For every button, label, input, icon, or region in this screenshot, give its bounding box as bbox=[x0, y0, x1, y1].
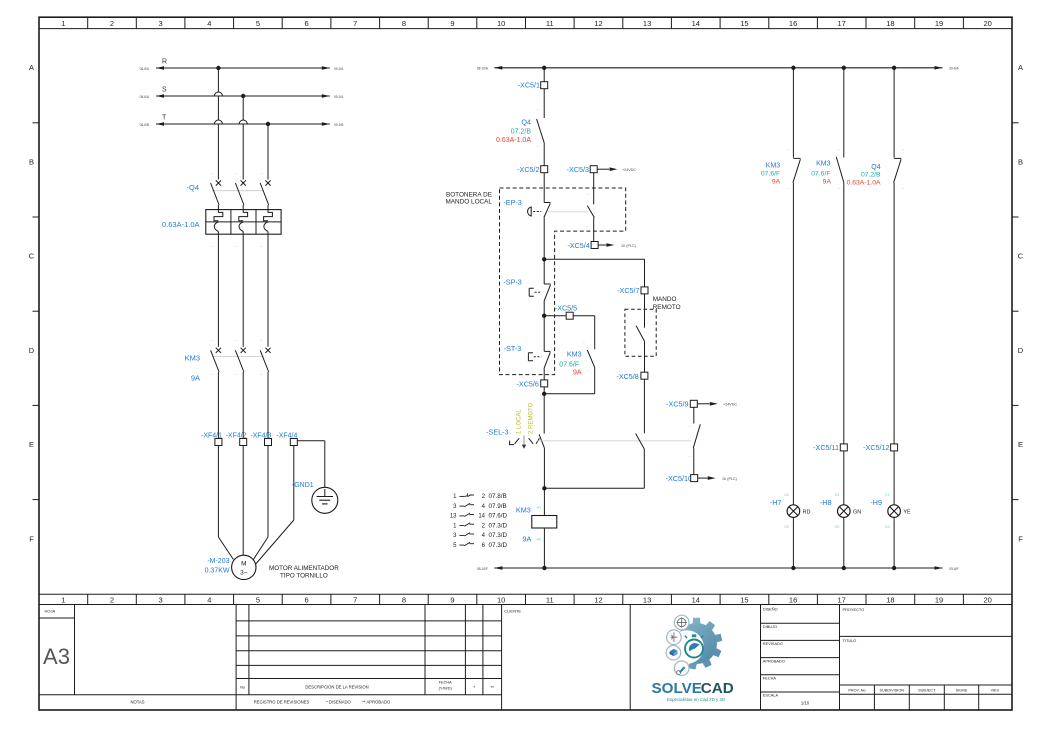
svg-text:M: M bbox=[241, 561, 246, 568]
svg-text:9A: 9A bbox=[523, 535, 532, 544]
svg-text:SUBDIVISION: SUBDIVISION bbox=[880, 688, 905, 692]
svg-text:07.6/F: 07.6/F bbox=[761, 170, 780, 177]
svg-text:9A: 9A bbox=[573, 370, 582, 377]
svg-text:E: E bbox=[1018, 440, 1023, 449]
svg-text:08-6/A: 08-6/A bbox=[140, 67, 150, 71]
svg-text:10: 10 bbox=[497, 19, 505, 28]
svg-text:9A: 9A bbox=[772, 178, 781, 185]
svg-text:(Y/M/D): (Y/M/D) bbox=[439, 687, 453, 691]
svg-text:07.6/F: 07.6/F bbox=[811, 170, 830, 177]
svg-text:0.63A-1.0A: 0.63A-1.0A bbox=[162, 220, 200, 229]
svg-text:10: 10 bbox=[497, 596, 505, 605]
svg-text:F: F bbox=[1018, 534, 1023, 543]
svg-text:2: 2 bbox=[110, 19, 114, 28]
svg-text:MANDO: MANDO bbox=[653, 296, 677, 303]
svg-text:MANDO LOCAL: MANDO LOCAL bbox=[445, 199, 492, 206]
svg-text:0.37KW: 0.37KW bbox=[205, 568, 230, 575]
svg-text:ESCALA: ESCALA bbox=[763, 693, 779, 698]
svg-text:-XC5/6: -XC5/6 bbox=[517, 379, 539, 388]
svg-text:-XC5/11: -XC5/11 bbox=[813, 443, 839, 452]
svg-text:1: 1 bbox=[61, 596, 65, 605]
svg-text:6: 6 bbox=[305, 596, 309, 605]
svg-text:-GND1: -GND1 bbox=[292, 482, 314, 489]
svg-text:DI (PLC): DI (PLC) bbox=[622, 244, 636, 248]
svg-text:X1: X1 bbox=[885, 492, 891, 497]
svg-text:B: B bbox=[1018, 157, 1023, 166]
svg-text:KM3: KM3 bbox=[567, 350, 582, 359]
svg-text:14: 14 bbox=[692, 596, 700, 605]
svg-text:07.2/B: 07.2/B bbox=[511, 129, 532, 136]
svg-text:SUBJECT: SUBJECT bbox=[918, 688, 936, 692]
svg-text:KM3: KM3 bbox=[185, 354, 200, 363]
svg-text:8: 8 bbox=[402, 596, 406, 605]
svg-text:REVISADO: REVISADO bbox=[763, 641, 783, 646]
svg-text:07.8/B: 07.8/B bbox=[489, 493, 507, 500]
svg-text:5: 5 bbox=[256, 596, 260, 605]
svg-text:11: 11 bbox=[546, 19, 554, 28]
svg-text:TITULO: TITULO bbox=[843, 638, 857, 643]
svg-text:18: 18 bbox=[886, 19, 894, 28]
svg-text:09-6/F: 09-6/F bbox=[949, 567, 958, 571]
svg-text:14: 14 bbox=[478, 514, 485, 520]
svg-text:4: 4 bbox=[207, 19, 211, 28]
svg-text:14: 14 bbox=[692, 19, 700, 28]
svg-text:CLIENTE: CLIENTE bbox=[504, 609, 521, 614]
svg-text:* DISEÑADO: * DISEÑADO bbox=[326, 700, 351, 705]
svg-text:09-2/A: 09-2/A bbox=[334, 67, 344, 71]
svg-text:3: 3 bbox=[159, 596, 163, 605]
svg-text:4: 4 bbox=[207, 596, 211, 605]
svg-text:-XC5/4: -XC5/4 bbox=[567, 241, 589, 250]
svg-text:20: 20 bbox=[984, 19, 992, 28]
svg-text:SOLVE: SOLVE bbox=[652, 680, 702, 697]
svg-text:D: D bbox=[1018, 346, 1024, 355]
svg-text:6: 6 bbox=[305, 19, 309, 28]
svg-text:X1: X1 bbox=[835, 492, 841, 497]
svg-text:C: C bbox=[29, 252, 35, 261]
svg-text:A2: A2 bbox=[537, 537, 543, 542]
svg-text:REGISTRO DE REVISIONES: REGISTRO DE REVISIONES bbox=[254, 700, 310, 705]
svg-text:Q4: Q4 bbox=[871, 164, 880, 171]
svg-text:MOTOR ALIMENTADOR: MOTOR ALIMENTADOR bbox=[269, 565, 339, 572]
svg-text:-XC5/7: -XC5/7 bbox=[617, 286, 639, 295]
svg-text:12: 12 bbox=[594, 596, 602, 605]
svg-text:SIGNE: SIGNE bbox=[956, 688, 968, 692]
svg-text:5: 5 bbox=[256, 19, 260, 28]
svg-text:A: A bbox=[29, 63, 34, 72]
svg-text:7: 7 bbox=[353, 19, 357, 28]
svg-text:Q4: Q4 bbox=[521, 118, 531, 127]
svg-text:D: D bbox=[29, 346, 35, 355]
svg-text:16: 16 bbox=[789, 19, 797, 28]
svg-text:A3: A3 bbox=[43, 644, 70, 669]
svg-text:CAD: CAD bbox=[701, 680, 734, 697]
svg-text:15: 15 bbox=[740, 19, 748, 28]
svg-text:PROY. No: PROY. No bbox=[848, 688, 865, 692]
svg-text:09-2/B: 09-2/B bbox=[334, 123, 343, 127]
svg-text:RD: RD bbox=[803, 510, 811, 516]
svg-text:HOJA: HOJA bbox=[45, 609, 56, 614]
svg-text:-XC5/1: -XC5/1 bbox=[518, 81, 540, 90]
svg-text:13: 13 bbox=[450, 514, 457, 520]
svg-text:15: 15 bbox=[740, 596, 748, 605]
svg-text:PROYECTO: PROYECTO bbox=[843, 607, 865, 612]
svg-text:0.63A-1.0A: 0.63A-1.0A bbox=[496, 137, 531, 144]
svg-text:-XC5/2: -XC5/2 bbox=[517, 165, 539, 174]
svg-text:GN: GN bbox=[853, 510, 861, 516]
svg-text:A: A bbox=[1018, 63, 1023, 72]
svg-text:No: No bbox=[240, 686, 245, 690]
svg-text:1 LOCAL: 1 LOCAL bbox=[517, 409, 523, 434]
svg-text:3: 3 bbox=[159, 19, 163, 28]
svg-text:KM3: KM3 bbox=[816, 160, 831, 167]
svg-text:REV: REV bbox=[991, 688, 999, 692]
svg-text:09-2/A: 09-2/A bbox=[334, 95, 344, 99]
svg-text:1/10: 1/10 bbox=[801, 701, 810, 706]
svg-text:+24VDC: +24VDC bbox=[622, 168, 636, 172]
svg-text:APROBADO: APROBADO bbox=[763, 658, 785, 663]
svg-text:X1: X1 bbox=[784, 492, 790, 497]
svg-text:9A: 9A bbox=[191, 374, 200, 383]
svg-text:07.3/D: 07.3/D bbox=[489, 532, 508, 539]
svg-text:** APROBADO: ** APROBADO bbox=[362, 700, 391, 705]
svg-text:07.6/D: 07.6/D bbox=[489, 513, 508, 520]
svg-text:-SEL-3: -SEL-3 bbox=[486, 428, 508, 437]
svg-text:2: 2 bbox=[110, 596, 114, 605]
svg-text:19: 19 bbox=[935, 19, 943, 28]
svg-text:17: 17 bbox=[838, 596, 846, 605]
svg-text:DIBUJO: DIBUJO bbox=[763, 624, 777, 629]
svg-text:07.6/F: 07.6/F bbox=[559, 361, 579, 368]
svg-text:-XC5/10: -XC5/10 bbox=[666, 474, 692, 483]
svg-text:-EP-3: -EP-3 bbox=[503, 198, 521, 207]
svg-text:7: 7 bbox=[353, 596, 357, 605]
svg-text:20: 20 bbox=[984, 596, 992, 605]
svg-text:08-10/F: 08-10/F bbox=[477, 567, 488, 571]
svg-text:TIPO TORNILLO: TIPO TORNILLO bbox=[280, 573, 328, 580]
svg-text:-XC5/8: -XC5/8 bbox=[616, 372, 638, 381]
svg-text:-XC5/3: -XC5/3 bbox=[567, 165, 589, 174]
svg-text:07.3/D: 07.3/D bbox=[489, 542, 508, 549]
svg-text:07.3/D: 07.3/D bbox=[489, 522, 508, 529]
svg-text:*: * bbox=[473, 685, 475, 690]
svg-text:DI (PLC): DI (PLC) bbox=[723, 477, 737, 481]
svg-text:FECHA: FECHA bbox=[763, 675, 777, 680]
svg-text:-H7: -H7 bbox=[770, 498, 782, 507]
svg-text:8: 8 bbox=[402, 19, 406, 28]
svg-text:-XC5/12: -XC5/12 bbox=[863, 443, 889, 452]
svg-text:18: 18 bbox=[886, 596, 894, 605]
svg-text:-SP-3: -SP-3 bbox=[503, 278, 521, 287]
svg-text:-XC5/9: -XC5/9 bbox=[666, 399, 688, 408]
svg-text:F: F bbox=[29, 534, 34, 543]
svg-text:FECHA: FECHA bbox=[439, 681, 452, 685]
svg-text:17: 17 bbox=[838, 19, 846, 28]
svg-text:-H8: -H8 bbox=[820, 498, 832, 507]
svg-text:DESCRIPCION DE LA REVISION: DESCRIPCION DE LA REVISION bbox=[305, 685, 368, 690]
svg-text:DISEÑO: DISEÑO bbox=[763, 606, 778, 611]
svg-text:0.63A-1.0A: 0.63A-1.0A bbox=[847, 179, 881, 186]
svg-text:08-6/A: 08-6/A bbox=[140, 95, 150, 99]
svg-text:X2: X2 bbox=[835, 524, 841, 529]
svg-text:YE: YE bbox=[903, 510, 911, 516]
svg-text:09-6/A: 09-6/A bbox=[949, 67, 959, 71]
svg-text:E: E bbox=[29, 440, 34, 449]
svg-text:3~: 3~ bbox=[240, 570, 248, 577]
svg-text:B: B bbox=[29, 157, 34, 166]
svg-text:19: 19 bbox=[935, 596, 943, 605]
svg-text:12: 12 bbox=[594, 19, 602, 28]
svg-text:NOTAS: NOTAS bbox=[130, 700, 144, 705]
svg-text:9A: 9A bbox=[823, 178, 832, 185]
svg-text:KM3: KM3 bbox=[516, 505, 531, 514]
svg-text:13: 13 bbox=[643, 596, 651, 605]
svg-text:BOTONERA DE: BOTONERA DE bbox=[446, 191, 492, 198]
svg-text:**: ** bbox=[491, 685, 495, 690]
svg-text:-ST-3: -ST-3 bbox=[504, 344, 522, 353]
svg-text:REMOTO: REMOTO bbox=[653, 304, 681, 311]
svg-text:+24VDC: +24VDC bbox=[723, 403, 737, 407]
svg-text:S: S bbox=[162, 87, 167, 94]
svg-text:R: R bbox=[162, 59, 167, 66]
svg-text:-M-203: -M-203 bbox=[207, 558, 229, 565]
svg-text:1: 1 bbox=[61, 19, 65, 28]
svg-text:9: 9 bbox=[450, 19, 454, 28]
svg-text:-Q4: -Q4 bbox=[186, 183, 199, 192]
svg-text:16: 16 bbox=[789, 596, 797, 605]
svg-text:13: 13 bbox=[643, 19, 651, 28]
svg-text:X2: X2 bbox=[885, 524, 891, 529]
svg-text:T: T bbox=[162, 115, 167, 122]
svg-text:C: C bbox=[1018, 252, 1024, 261]
svg-text:08-6/B: 08-6/B bbox=[140, 123, 149, 127]
svg-text:9: 9 bbox=[450, 596, 454, 605]
svg-text:2 REMOTO: 2 REMOTO bbox=[529, 402, 535, 434]
svg-text:Especialistas en Cad 2D y 3D: Especialistas en Cad 2D y 3D bbox=[667, 697, 725, 702]
svg-text:07.2/B: 07.2/B bbox=[861, 171, 881, 178]
svg-text:11: 11 bbox=[546, 596, 554, 605]
svg-text:X2: X2 bbox=[784, 524, 790, 529]
svg-text:-H9: -H9 bbox=[870, 498, 882, 507]
svg-text:KM3: KM3 bbox=[766, 162, 781, 169]
svg-text:A1: A1 bbox=[537, 505, 543, 510]
svg-text:08-10/A: 08-10/A bbox=[477, 67, 489, 71]
svg-text:-XC5/5: -XC5/5 bbox=[555, 304, 577, 313]
svg-text:07.9/B: 07.9/B bbox=[489, 503, 507, 510]
